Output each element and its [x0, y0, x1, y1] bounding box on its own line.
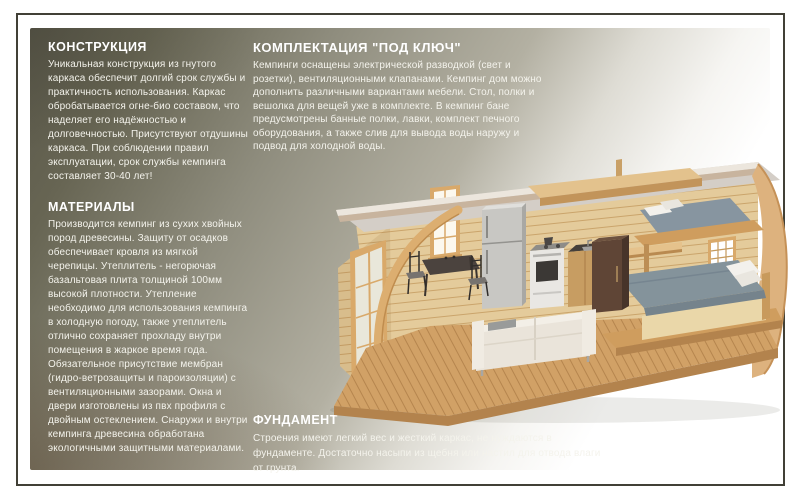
- package-title: КОМПЛЕКТАЦИЯ "ПОД КЛЮЧ": [253, 40, 543, 55]
- fridge: [482, 203, 526, 309]
- package-body: Кемпинги оснащены электрической разводко…: [253, 59, 543, 154]
- brochure-page: КОНСТРУКЦИЯ Уникальная конструкция из гн…: [0, 0, 800, 500]
- wardrobe: [592, 235, 629, 313]
- stove: [530, 237, 570, 309]
- construction-title: КОНСТРУКЦИЯ: [48, 40, 250, 54]
- cabin-cutaway-svg: [330, 148, 790, 433]
- construction-body: Уникальная конструкция из гнутого каркас…: [48, 58, 250, 184]
- left-column: КОНСТРУКЦИЯ Уникальная конструкция из гн…: [48, 40, 250, 456]
- materials-body: Производится кемпинг из сухих хвойных по…: [48, 218, 250, 456]
- materials-title: МАТЕРИАЛЫ: [48, 200, 250, 214]
- package-section: КОМПЛЕКТАЦИЯ "ПОД КЛЮЧ" Кемпинги оснащен…: [253, 40, 543, 154]
- foundation-body: Строения имеют легкий вес и жесткий карк…: [253, 431, 601, 476]
- cabin-cutaway-illustration: [330, 148, 790, 433]
